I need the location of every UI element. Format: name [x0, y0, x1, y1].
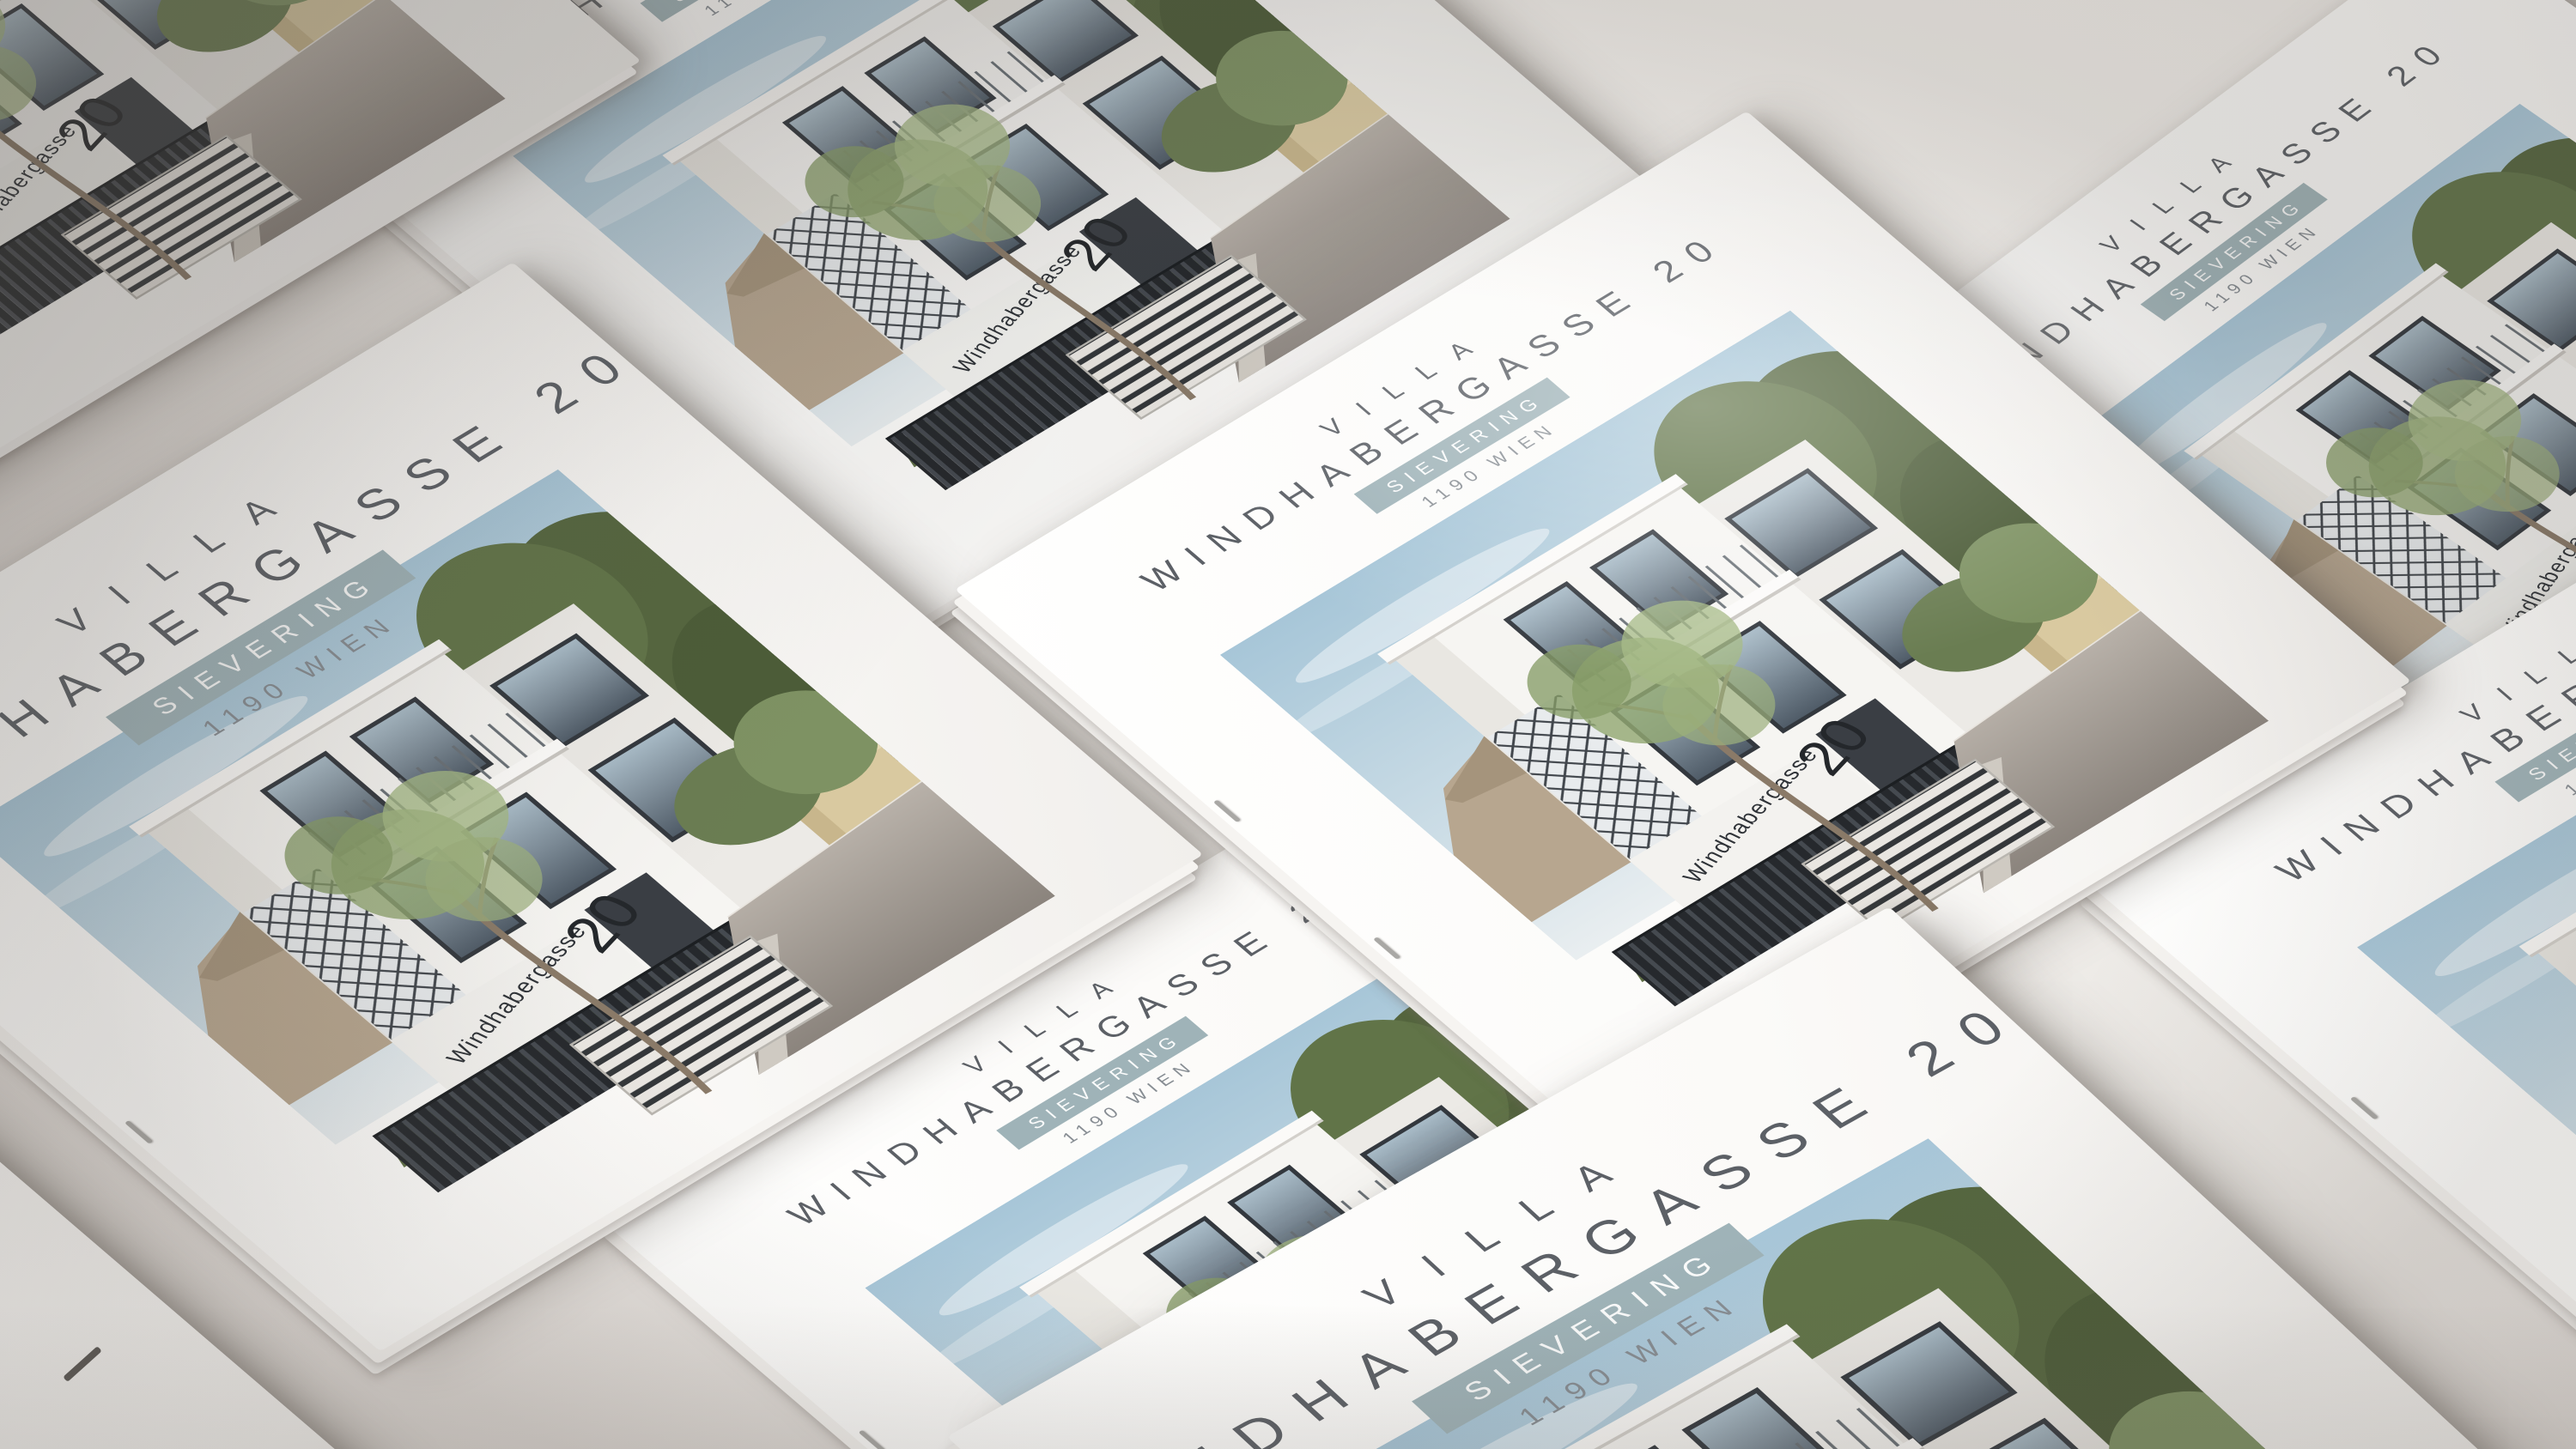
brochure-photo-scene: VILLA WINDHABERGASSE 20 SIEVERING 1190 W… [0, 0, 2576, 1449]
